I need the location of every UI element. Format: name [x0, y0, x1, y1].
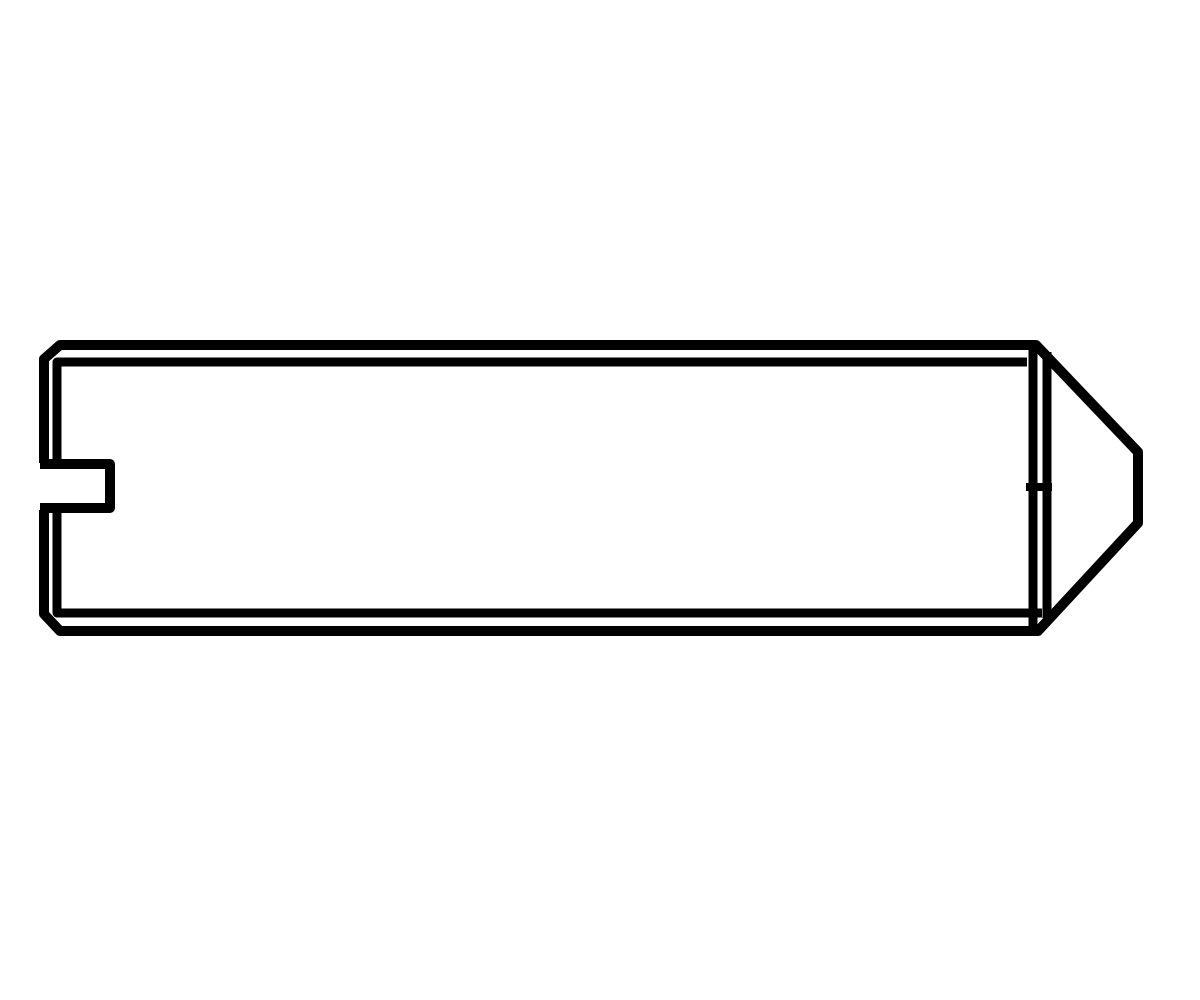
screw-body-outline [44, 345, 1138, 631]
top-chamfer-inner-line [57, 362, 1027, 463]
bottom-chamfer-inner-line [57, 510, 1042, 613]
drive-slot-notch [40, 464, 110, 508]
technical-drawing-canvas [0, 0, 1200, 1000]
set-screw-drawing [0, 0, 1200, 1000]
